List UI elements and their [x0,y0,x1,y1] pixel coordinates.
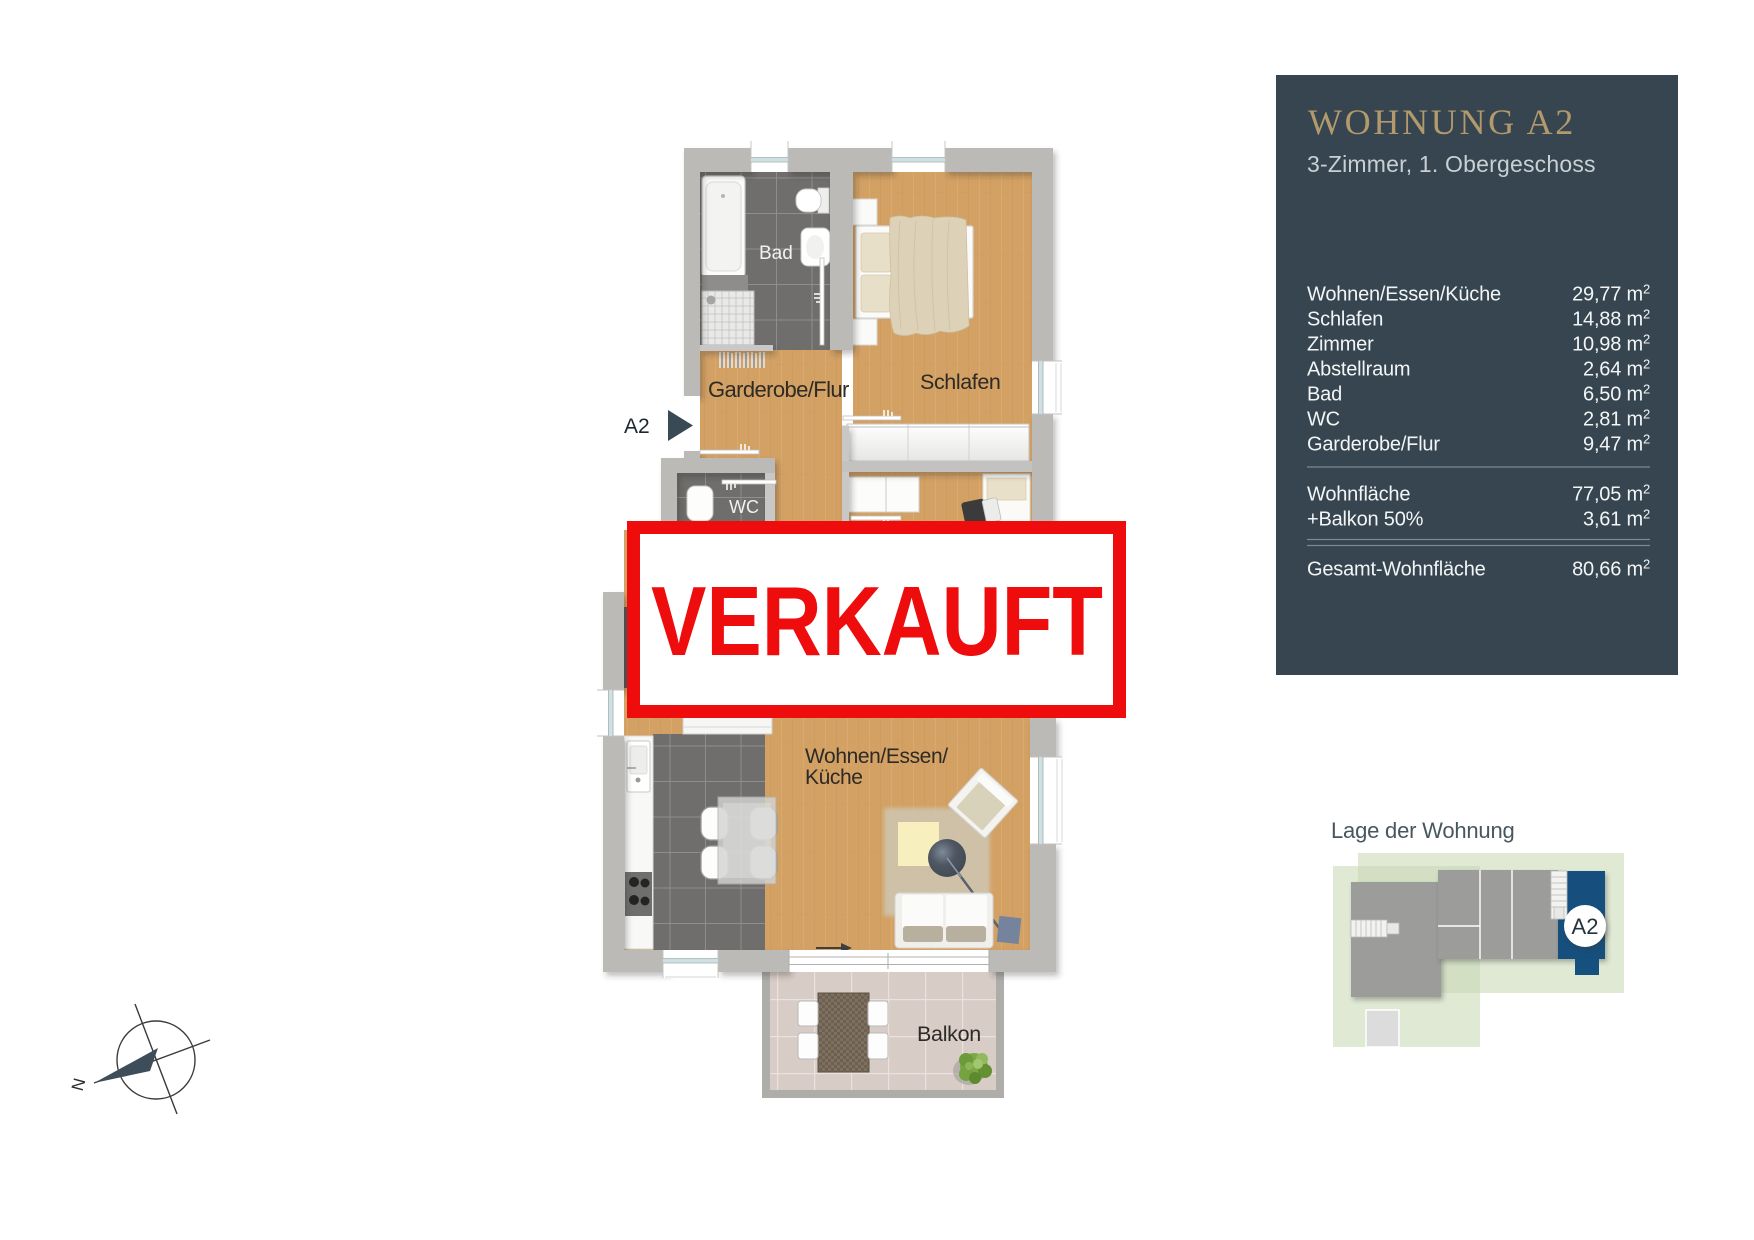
svg-text:Bad: Bad [1307,384,1342,406]
svg-text:6,50 m2: 6,50 m2 [1583,382,1650,406]
svg-text:Gesamt-Wohnfläche: Gesamt-Wohnfläche [1307,559,1486,581]
svg-text:77,05 m2: 77,05 m2 [1572,482,1650,506]
svg-text:Küche: Küche [805,766,863,789]
svg-text:Wohnen/Essen/: Wohnen/Essen/ [805,745,948,768]
svg-text:Abstellraum: Abstellraum [1307,359,1410,381]
svg-text:14,88 m2: 14,88 m2 [1572,307,1650,331]
svg-text:Garderobe/Flur: Garderobe/Flur [1307,434,1440,456]
svg-text:2,64 m2: 2,64 m2 [1583,357,1650,381]
svg-text:+Balkon 50%: +Balkon 50% [1307,509,1424,531]
svg-text:9,47 m2: 9,47 m2 [1583,432,1650,456]
svg-text:Schlafen: Schlafen [1307,309,1383,331]
svg-text:Zimmer: Zimmer [1307,334,1374,356]
svg-text:Schlafen: Schlafen [920,370,1000,394]
svg-text:2,81 m2: 2,81 m2 [1583,407,1650,431]
svg-text:29,77 m2: 29,77 m2 [1572,282,1650,306]
svg-text:WC: WC [1307,409,1340,431]
svg-text:A2: A2 [624,415,650,438]
svg-text:Lage der Wohnung: Lage der Wohnung [1331,818,1515,843]
svg-text:Bad: Bad [759,243,793,264]
svg-text:Balkon: Balkon [917,1022,981,1046]
svg-text:WC: WC [729,497,759,517]
svg-text:10,98 m2: 10,98 m2 [1572,332,1650,356]
svg-text:Wohnen/Essen/Küche: Wohnen/Essen/Küche [1307,284,1501,306]
svg-text:A2: A2 [1572,914,1599,939]
svg-text:Wohnfläche: Wohnfläche [1307,484,1410,506]
svg-text:WOHNUNG A2: WOHNUNG A2 [1308,102,1576,142]
svg-text:80,66 m2: 80,66 m2 [1572,557,1650,581]
svg-text:3-Zimmer, 1. Obergeschoss: 3-Zimmer, 1. Obergeschoss [1307,151,1596,177]
svg-text:VERKAUFT: VERKAUFT [651,566,1103,676]
svg-text:Garderobe/Flur: Garderobe/Flur [708,377,849,402]
svg-text:3,61 m2: 3,61 m2 [1583,507,1650,531]
